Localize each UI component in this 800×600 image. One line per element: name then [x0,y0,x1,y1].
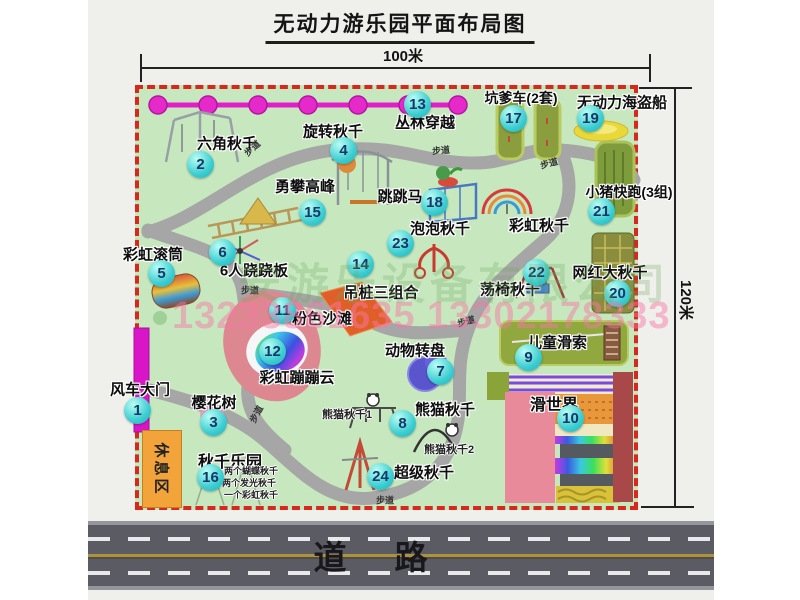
item-marker-7: 7 [427,358,454,385]
item-label: 泡泡秋千 [410,218,470,239]
sub-label: 一个彩虹秋千 [224,488,278,501]
item-marker-3: 3 [200,409,227,436]
dimension-height-label: 120米 [676,280,697,320]
item-marker-10: 10 [557,405,584,432]
item-marker-19: 19 [577,105,604,132]
item-label: 动物转盘 [385,340,445,361]
sub-label: 熊猫秋千2 [424,441,474,457]
road: 道路 [88,521,714,590]
item-marker-1: 1 [124,397,151,424]
item-marker-15: 15 [299,199,326,226]
item-marker-8: 8 [389,410,416,437]
item-marker-24: 24 [367,463,394,490]
item-label: 坑爹车(2套) [484,88,557,108]
item-marker-6: 6 [209,239,236,266]
item-marker-21: 21 [588,198,615,225]
footpath-label: 步道 [376,494,394,507]
road-label: 道路 [314,531,476,579]
item-marker-13: 13 [404,91,431,118]
item-marker-2: 2 [187,151,214,178]
item-marker-12: 12 [259,338,286,365]
item-label: 超级秋千 [394,462,454,483]
page-title: 无动力游乐园平面布局图 [266,8,535,44]
item-label: 熊猫秋千 [415,399,475,420]
footpath-label: 步道 [431,143,450,158]
item-label: 跳跳马 [377,186,422,207]
rest-area-label: 休息区 [152,442,173,496]
item-marker-9: 9 [515,344,542,371]
item-marker-16: 16 [197,464,224,491]
item-label: 勇攀高峰 [275,176,335,197]
dimension-width-label: 100米 [383,45,423,66]
item-marker-18: 18 [421,189,448,216]
sub-label: 熊猫秋千1 [322,406,372,422]
playground-plan-page: 无动力游乐园平面布局图 [0,0,800,600]
rest-area-box: 休息区 [142,430,182,508]
item-marker-4: 4 [330,137,357,164]
item-label: 彩虹蹦蹦云 [259,367,334,388]
item-label: 彩虹秋千 [509,215,569,236]
item-marker-17: 17 [500,105,527,132]
watermark-phone: 13233861635 13302178333 [172,295,671,338]
item-label: 旋转秋千 [303,121,363,142]
item-marker-5: 5 [148,260,175,287]
